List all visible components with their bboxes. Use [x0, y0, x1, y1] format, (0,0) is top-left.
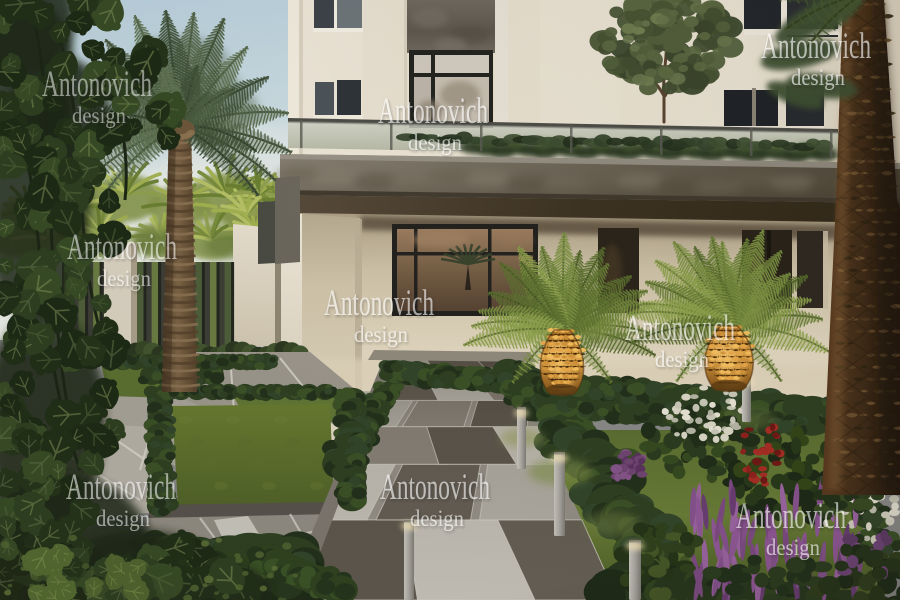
svg-text:Antonovich: Antonovich	[378, 91, 488, 132]
svg-text:Antonovich: Antonovich	[324, 283, 434, 324]
svg-text:Antonovich: Antonovich	[761, 26, 871, 67]
svg-text:Antonovich: Antonovich	[66, 467, 176, 508]
svg-text:Antonovich: Antonovich	[67, 227, 177, 268]
svg-text:design: design	[97, 266, 151, 291]
svg-text:design: design	[96, 506, 150, 531]
svg-text:design: design	[655, 347, 709, 372]
svg-text:Antonovich: Antonovich	[380, 467, 490, 508]
svg-text:design: design	[72, 103, 126, 128]
svg-text:design: design	[766, 535, 820, 560]
svg-text:Antonovich: Antonovich	[736, 496, 846, 537]
svg-text:design: design	[354, 322, 408, 347]
svg-text:Antonovich: Antonovich	[42, 64, 152, 105]
svg-text:design: design	[408, 130, 462, 155]
svg-text:design: design	[410, 506, 464, 531]
svg-text:design: design	[791, 65, 845, 90]
svg-text:Antonovich: Antonovich	[625, 308, 735, 349]
